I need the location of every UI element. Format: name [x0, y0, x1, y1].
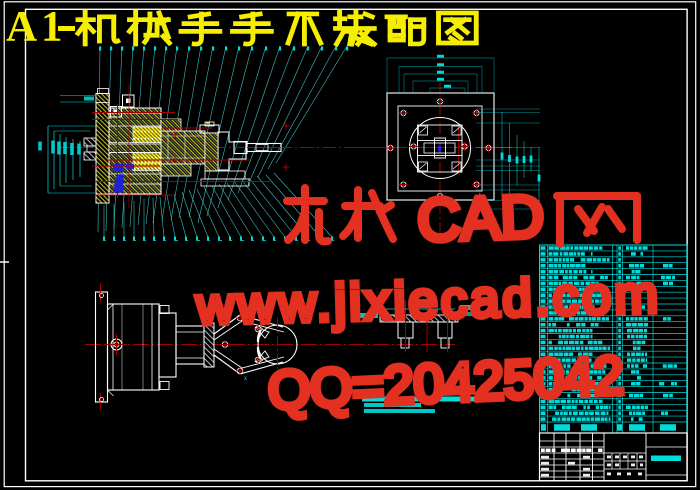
svg-text:www.jixiecad.com: www.jixiecad.com: [195, 266, 662, 336]
svg-text:x: x: [244, 376, 247, 382]
svg-text:A1: A1: [6, 4, 63, 51]
svg-text:CAD: CAD: [416, 183, 545, 254]
